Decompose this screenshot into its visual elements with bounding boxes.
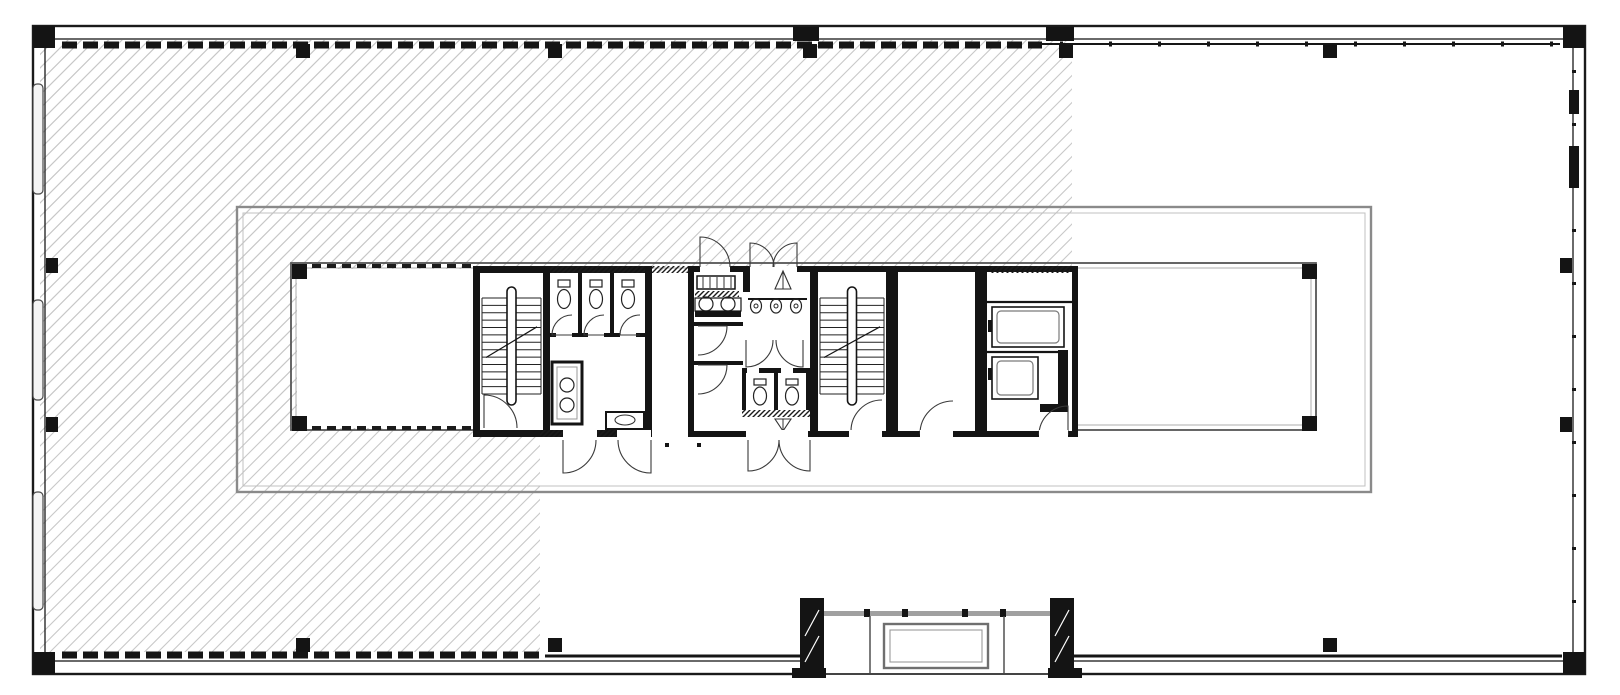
door-gap: [849, 430, 882, 437]
entry-pier-left: [800, 598, 824, 678]
core-corridor: [652, 273, 688, 437]
stall-partition: [774, 368, 778, 410]
column: [1323, 638, 1337, 652]
corner-column: [33, 26, 55, 48]
column: [548, 44, 562, 58]
corner-column: [1563, 26, 1585, 48]
column: [1302, 264, 1317, 279]
elevator-door-jamb: [988, 320, 992, 332]
floor-plan-svg: [0, 0, 1620, 695]
window-sash: [33, 492, 43, 610]
lobby-room: [898, 272, 975, 431]
column: [548, 638, 562, 652]
column: [46, 258, 58, 273]
stall-partition: [806, 368, 810, 410]
wall-hatch: [597, 430, 617, 437]
column: [292, 264, 307, 279]
stall-partition: [578, 273, 582, 335]
wall-segment: [1569, 146, 1579, 188]
column: [292, 416, 307, 431]
door-stop: [665, 443, 669, 447]
door-gap: [617, 430, 651, 437]
wall-pier: [1046, 27, 1074, 41]
wall-hatch: [652, 266, 688, 273]
wall-pier: [793, 27, 819, 41]
pier-foot: [792, 668, 826, 678]
entry-glass: [824, 611, 1050, 616]
door-gap: [746, 430, 808, 437]
wall-segment: [743, 272, 750, 292]
elevator-shaft-1: [992, 307, 1064, 347]
floor-plan: [0, 0, 1620, 695]
wall-segment: [1569, 90, 1579, 114]
corner-column: [33, 652, 55, 674]
entry-pier-right: [1050, 598, 1074, 678]
wall-segment: [694, 361, 743, 365]
wall-hatch: [695, 291, 739, 297]
column: [1323, 44, 1337, 58]
wall-segment: [694, 322, 743, 326]
wall-hatch: [742, 410, 810, 417]
wall-segment: [695, 311, 741, 317]
entry-mullion: [864, 609, 870, 617]
elevator-shaft-2: [992, 357, 1038, 399]
stall-partition: [742, 368, 746, 410]
door-gap: [700, 266, 730, 272]
door-gap: [1039, 430, 1068, 437]
column: [1560, 258, 1572, 273]
elevator-door-jamb: [988, 368, 992, 380]
door-swing: [748, 440, 779, 471]
door-swing: [618, 440, 651, 473]
door-gap: [920, 430, 953, 437]
door-gap: [747, 368, 759, 373]
wall-segment: [1040, 404, 1068, 412]
column: [803, 44, 817, 58]
pier-foot: [1048, 668, 1082, 678]
door-gap: [563, 430, 597, 437]
entry-mat-outer: [884, 624, 988, 668]
entry-mullion: [1000, 609, 1006, 617]
window-sash: [33, 300, 43, 400]
door-swing: [779, 440, 810, 471]
column: [1059, 44, 1073, 58]
west-room: [297, 269, 473, 428]
entry-mullion: [902, 609, 908, 617]
wall-hatch: [550, 266, 645, 273]
window-sash: [33, 84, 43, 194]
door-stop: [697, 443, 701, 447]
wall-segment: [1058, 350, 1068, 412]
entry-mullion: [962, 609, 968, 617]
corner-column: [1563, 652, 1585, 674]
door-swing: [563, 440, 596, 473]
wall-hatch: [540, 430, 563, 437]
stall-partition: [610, 273, 614, 335]
wall-hatch: [990, 266, 1070, 273]
column: [46, 417, 58, 432]
column: [1302, 416, 1317, 431]
column: [296, 638, 310, 652]
column: [1560, 417, 1572, 432]
door-gap: [781, 368, 793, 373]
column: [296, 44, 310, 58]
